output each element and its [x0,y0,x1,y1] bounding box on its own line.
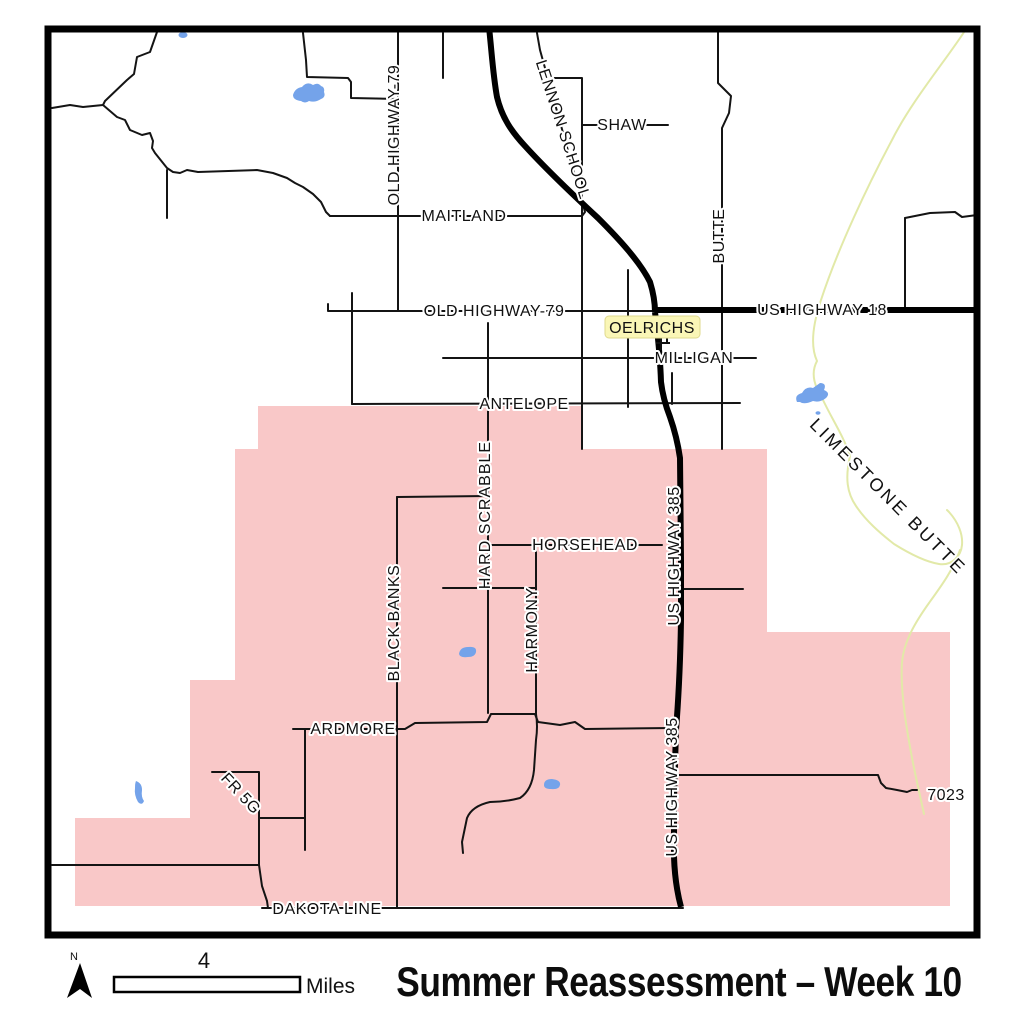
scale-unit: Miles [306,975,355,998]
label-limestone-butte: LIMESTONE BUTTE [806,414,971,579]
label-harmony: HARMONY [524,587,541,672]
label-antelope: ANTELOPE [479,396,568,413]
assessment-area-polygon [75,406,950,906]
label-ardmore: ARDMORE [310,721,395,738]
label-shaw: SHAW [597,117,647,134]
north-arrow-icon [67,963,92,998]
label-lennon-school: LENNON SCHOOL [532,58,593,201]
lake-harmony [544,779,560,789]
map-canvas: OELRICHS OLD HIGHWAY-79 LENNON SCHOOL SH… [0,0,1024,1024]
label-dakota-line: DAKOTA LINE [272,901,381,918]
scale-value: 4 [198,948,210,973]
label-hard-scrabble: HARD SCRABBLE [477,441,494,589]
label-old-highway-79-horizontal: OLD HIGHWAY-79 [424,303,565,320]
label-7023: 7023 [927,787,965,804]
road-nw-2 [52,105,103,108]
label-us-highway-385-south: US HIGHWAY 385 [664,717,681,856]
label-horsehead: HORSEHEAD [532,537,638,554]
label-butte: BUTTE [711,209,728,264]
label-black-banks: BLACK BANKS [386,565,403,682]
town-label: OELRICHS [609,320,695,337]
label-maitland: MAITLAND [422,208,507,225]
lake-southwest [135,781,144,804]
label-us-highway-18: US HIGHWAY 18 [757,302,887,319]
footer: N 4 Miles Summer Reassessment – Week 10 [67,948,962,1006]
road-nw-3 [103,105,330,216]
label-us-highway-385-north: US HIGHWAY 385 [666,486,683,625]
page-title: Summer Reassessment – Week 10 [396,959,961,1006]
road-ne-horizontal [905,212,977,218]
label-milligan: MILLIGAN [655,350,734,367]
road-blackbanks-connector [397,496,488,497]
map-document: OELRICHS OLD HIGHWAY-79 LENNON SCHOOL SH… [0,0,1024,1024]
label-old-highway-79-vertical: OLD HIGHWAY-79 [386,65,403,206]
pond-top-left [179,32,188,38]
north-label: N [70,951,78,963]
lake-northwest [293,83,325,102]
scale-bar [114,977,300,992]
road-nw-1 [103,32,157,105]
